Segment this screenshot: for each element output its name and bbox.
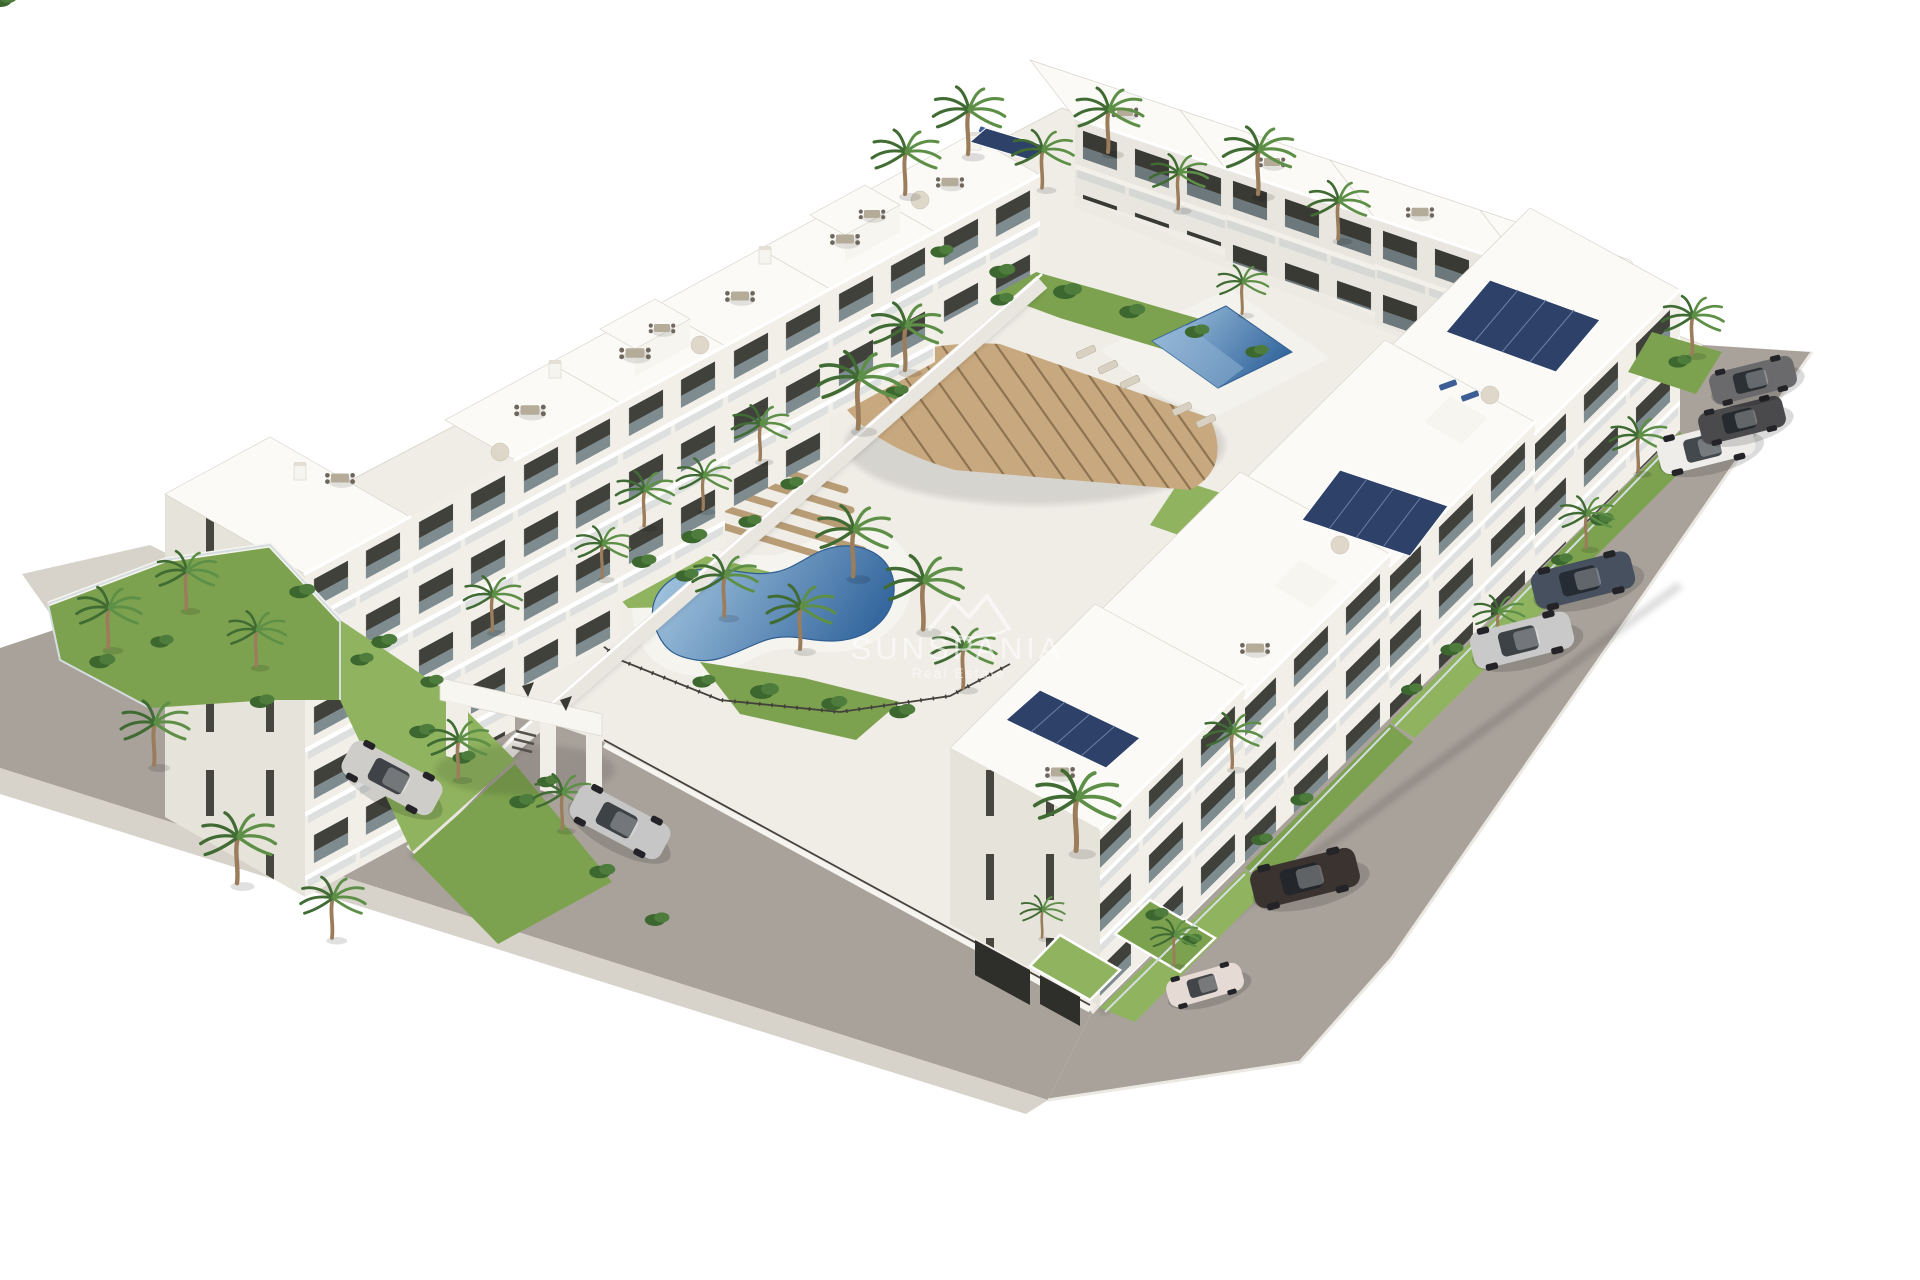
parasol — [1481, 386, 1499, 404]
watermark-tagline: Real Estate — [912, 666, 1006, 681]
watermark-brand: SUNSPANIA — [851, 631, 1064, 666]
render-canvas: SUNSPANIA Real Estate — [0, 0, 1920, 1280]
parasol — [691, 336, 709, 354]
parasol — [1331, 536, 1349, 554]
parasol — [491, 443, 509, 461]
architectural-render: SUNSPANIA Real Estate — [0, 0, 1920, 1280]
